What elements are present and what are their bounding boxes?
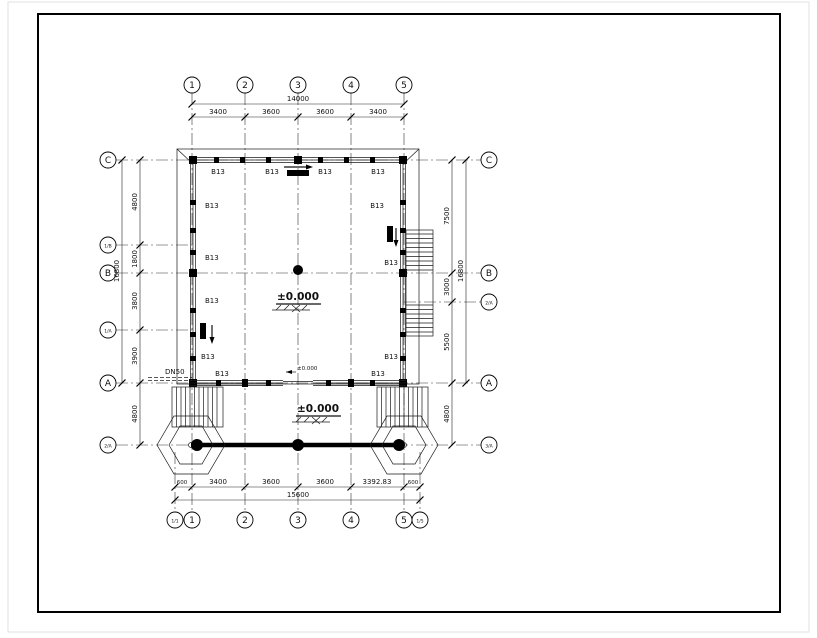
wall-top (189, 156, 407, 164)
dim-right-porch: 4800 (443, 405, 451, 423)
dim-right-seg-3: 5500 (443, 333, 451, 351)
wall-tag: B13 (215, 370, 229, 378)
dim-right-seg-1: 7500 (443, 207, 451, 225)
dim-right-overall: 16800 (457, 260, 465, 282)
dim-left-seg-4: 3900 (131, 347, 139, 365)
axis-label-B-left: B (105, 269, 111, 279)
pipe-annotation: DN50 (148, 368, 192, 381)
porch-column-right (393, 439, 405, 451)
section-marker-left (200, 323, 215, 344)
axis-label-B-right: B (486, 269, 492, 279)
wall-tag: B13 (384, 259, 398, 267)
dim-bottom-seg-5: 3392.83 (363, 478, 392, 486)
porch-steps-left (172, 387, 223, 427)
wall-tag: B13 (318, 168, 332, 176)
dimension-right: 7500 3000 5500 4800 16800 (443, 157, 470, 449)
axis-bubbles-left: C 1/B B 1/A A 2/A (100, 152, 116, 453)
dim-top-overall: 14000 (287, 95, 309, 103)
wall-tag: B13 (205, 202, 219, 210)
dim-left-seg-1: 4800 (131, 193, 139, 211)
wall-tag: B13 (371, 370, 385, 378)
dim-top-seg-3: 3600 (316, 108, 334, 116)
axis-label-b2: 2 (242, 516, 248, 526)
axis-label-1B-left: 1/B (104, 244, 111, 250)
wall-tag: B13 (371, 168, 385, 176)
axis-label-A-left: A (105, 379, 112, 389)
dim-left-seg-3: 3800 (131, 292, 139, 310)
interior-column (293, 265, 303, 275)
axis-bubbles-top: 1 2 3 4 5 (184, 77, 412, 93)
axis-label-1-5: 1/5 (416, 519, 423, 525)
axis-label-2A-left: 2/A (104, 444, 112, 450)
axis-label-b3: 3 (295, 516, 301, 526)
porch-beam (191, 439, 404, 451)
wall-tag: B13 (205, 254, 219, 262)
wall-tag: B13 (201, 353, 215, 361)
porch-steps-right (377, 387, 428, 427)
wall-tag: B13 (211, 168, 225, 176)
wall-tag: B13 (205, 297, 219, 305)
level-annotation-porch: ±0.000 (292, 403, 341, 424)
level-annotation-door: ±0.000 (286, 366, 318, 374)
section-marker-top (284, 165, 313, 177)
dim-top-seg-2: 3600 (262, 108, 280, 116)
axis-label-1-1: 1/1 (171, 519, 178, 525)
wall-tag: B13 (265, 168, 279, 176)
axis-label-b1: 1 (189, 516, 195, 526)
level-annotation-main: ±0.000 (272, 291, 321, 312)
dim-bottom-seg-1: 600 (177, 480, 188, 486)
wall-left (189, 163, 197, 387)
dim-left-seg-2: 1800 (131, 250, 139, 268)
dimension-bottom: 600 3400 3600 3600 3392.83 600 15600 (172, 478, 424, 504)
dim-bottom-seg-2: 3400 (209, 478, 227, 486)
dim-bottom-overall: 15600 (287, 491, 309, 499)
exterior-stair-east (406, 230, 433, 336)
dimension-left: 4800 1800 3800 3900 4800 16800 (113, 157, 144, 449)
axis-label-C-right: C (486, 156, 492, 166)
axis-label-3: 3 (295, 81, 301, 91)
dim-bottom-seg-3: 3600 (262, 478, 280, 486)
dim-top-seg-4: 3400 (369, 108, 387, 116)
dim-left-overall: 16800 (113, 260, 121, 282)
axis-label-5: 5 (401, 81, 407, 91)
axis-bubbles-right: C B 2/A A 3/A (481, 152, 497, 453)
axis-label-A-right: A (486, 379, 493, 389)
level-main-text: ±0.000 (277, 291, 319, 303)
wall-tag: B13 (370, 202, 384, 210)
dim-left-porch: 4800 (131, 405, 139, 423)
axis-label-3A-right: 3/A (485, 444, 493, 450)
drawing-sheet: 1 2 3 4 5 1/1 1 2 3 4 5 1/5 C 1/B B 1/A (0, 0, 817, 638)
pipe-tag: DN50 (165, 368, 185, 376)
dim-top-seg-1: 3400 (209, 108, 227, 116)
axis-label-2A-right: 2/A (485, 301, 493, 307)
dim-bottom-seg-4: 3600 (316, 478, 334, 486)
sheet-outer-edge (8, 2, 809, 632)
dimension-top: 14000 3400 3600 3600 3400 (189, 95, 408, 121)
porch-column-left (191, 439, 203, 451)
axis-label-2: 2 (242, 81, 248, 91)
dim-bottom-seg-6: 600 (408, 480, 419, 486)
level-porch-text: ±0.000 (297, 403, 339, 415)
section-marker-right (387, 226, 399, 247)
axis-label-1: 1 (189, 81, 195, 91)
level-door-text: ±0.000 (297, 366, 318, 372)
wall-tag: B13 (384, 353, 398, 361)
axis-label-1A-left: 1/A (104, 329, 112, 335)
axis-label-C-left: C (105, 156, 111, 166)
axis-label-b4: 4 (348, 516, 354, 526)
axis-label-4: 4 (348, 81, 354, 91)
floor-plan-canvas: 1 2 3 4 5 1/1 1 2 3 4 5 1/5 C 1/B B 1/A (0, 0, 817, 638)
axis-label-b5: 5 (401, 516, 407, 526)
porch-column-center (292, 439, 304, 451)
dim-right-seg-2: 3000 (443, 278, 451, 296)
axis-bubbles-bottom: 1/1 1 2 3 4 5 1/5 (167, 512, 428, 528)
